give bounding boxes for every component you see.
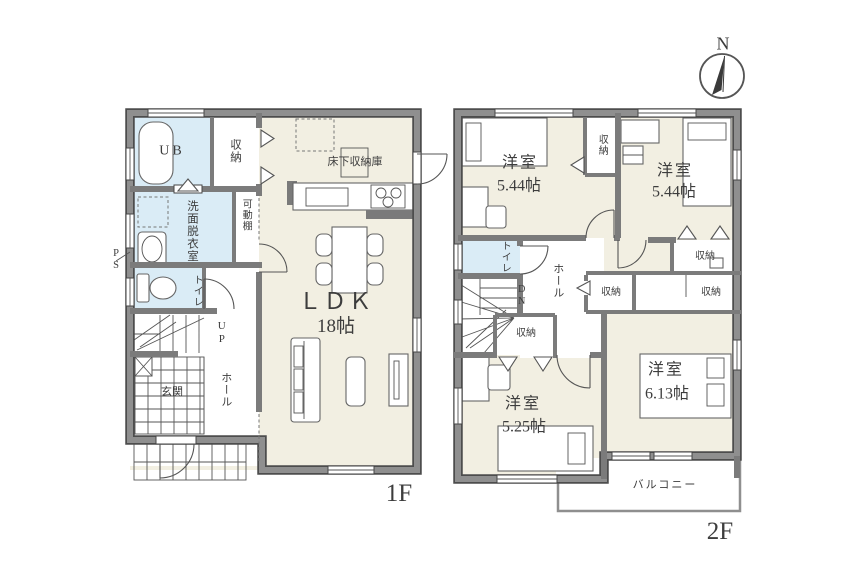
label-closet-se: 収納 xyxy=(701,288,721,299)
label-hall-1f: ホール xyxy=(219,372,231,408)
label-closet-stairs: 収納 xyxy=(516,329,536,340)
dining-table-icon xyxy=(332,227,367,293)
label-pipe-space: PS xyxy=(110,248,121,272)
label-underfloor-storage: 床下収納庫 xyxy=(328,157,383,169)
label-closet-center: 収納 xyxy=(601,288,621,299)
floorplan-page: UB 収納 床下収納庫 可動棚 洗面脱衣室 PS トイレ UP 玄関 ホール Ｌ… xyxy=(0,0,850,570)
label-unit-bath: UB xyxy=(159,145,184,160)
desk-nw-icon xyxy=(462,187,488,227)
compass xyxy=(700,54,744,98)
label-stairs-up: UP xyxy=(215,320,227,346)
label-floor1: 1F xyxy=(386,481,412,507)
label-toilet-2f: トイレ xyxy=(499,241,510,274)
label-entrance: 玄関 xyxy=(161,387,183,399)
label-ldk-name: ＬＤＫ xyxy=(299,290,374,314)
label-floor2: 2F xyxy=(707,519,733,545)
sofa-icon xyxy=(291,338,320,422)
label-bedroom-ne-size: 5.44帖 xyxy=(652,185,696,202)
floorplan-drawing xyxy=(0,0,850,570)
label-bedroom-sw-size: 5.25帖 xyxy=(502,420,546,437)
label-storage-1f: 収納 xyxy=(229,139,241,164)
label-ldk-size: 18帖 xyxy=(317,317,355,337)
label-washroom: 洗面脱衣室 xyxy=(186,200,198,263)
label-closet-ne: 収納 xyxy=(695,252,715,263)
label-bedroom-sw-name: 洋室 xyxy=(505,397,541,414)
tv-board-icon xyxy=(389,354,408,406)
label-bedroom-nw-size: 5.44帖 xyxy=(497,179,541,196)
label-toilet-1f: トイレ xyxy=(191,275,202,308)
label-stairs-down: DN xyxy=(516,284,527,308)
toilet-icon-1f xyxy=(137,274,149,302)
label-bedroom-se-name: 洋室 xyxy=(648,363,684,380)
label-balcony: バルコニー xyxy=(633,480,698,492)
label-bedroom-nw-name: 洋室 xyxy=(502,156,538,173)
room-closet-se xyxy=(634,273,737,312)
label-hall-2f: ホール xyxy=(551,263,563,299)
label-bedroom-se-size: 6.13帖 xyxy=(645,387,689,404)
label-compass-north: N xyxy=(717,35,730,54)
desk-ne-icon xyxy=(621,120,659,143)
label-bedroom-ne-name: 洋室 xyxy=(657,164,693,181)
label-movable-shelf: 可動棚 xyxy=(240,199,251,232)
coffee-table-icon xyxy=(346,357,365,406)
desk-sw-icon xyxy=(462,357,489,401)
label-closet-between: 収納 xyxy=(596,134,607,156)
